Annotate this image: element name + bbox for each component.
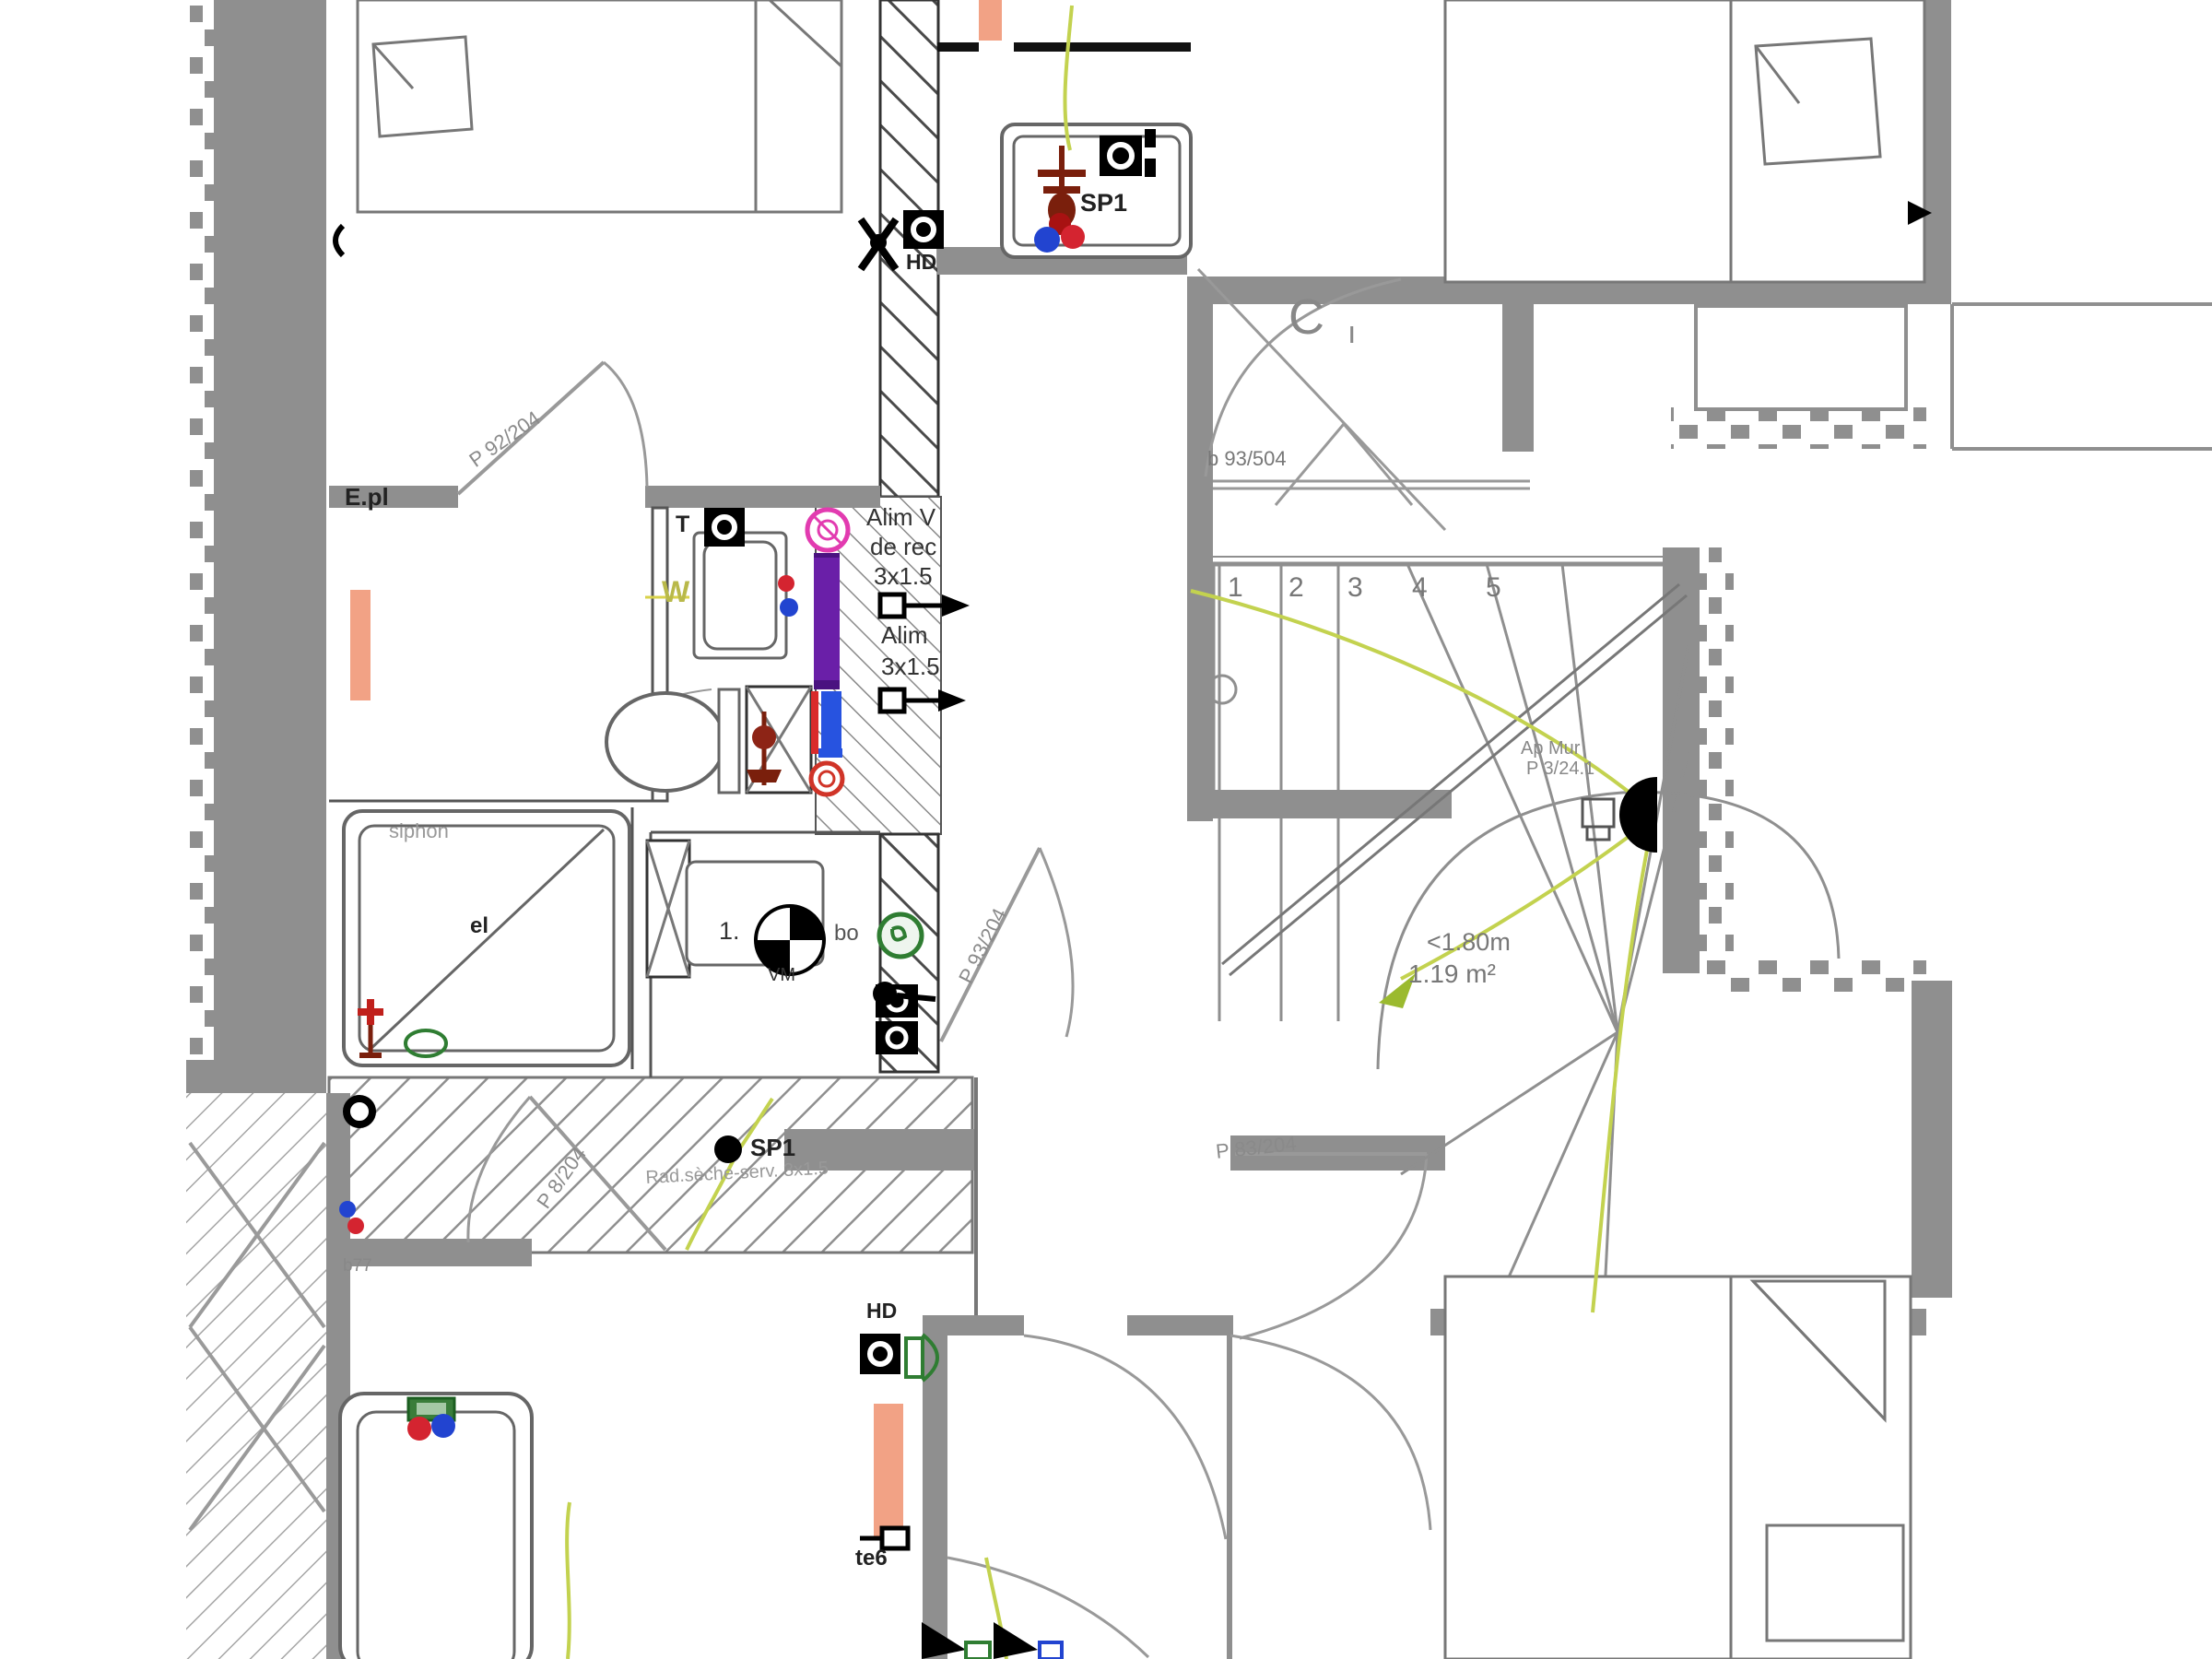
door-corridor-mid [941, 848, 1073, 1041]
label-dcl-num: 1. [719, 918, 740, 944]
label-w-mark: W [662, 577, 689, 608]
hot-dot-basin [778, 575, 794, 592]
hinge-mark [335, 226, 343, 255]
label-dcl-vm: VM [768, 966, 795, 985]
label-stair-dim1: <1.80m [1427, 929, 1511, 955]
hot-dot-wall [347, 1218, 364, 1234]
label-alim1-l1: Alim V [866, 505, 935, 530]
dcl-light-icon [756, 906, 824, 974]
floor-plan: SP1 HD Alim V de rec 3x1.5 Alim 3x1.5 E.… [0, 0, 2212, 1659]
riser-blue [821, 691, 841, 751]
label-hd-bottom: HD [866, 1300, 897, 1322]
bed-top-right [1445, 0, 1924, 282]
cold-water-dot [1034, 227, 1060, 253]
cold-dot-basin [780, 598, 798, 617]
label-siphon: siphon [389, 820, 449, 841]
door-bottom-room [947, 1335, 1226, 1657]
bed-bottom-right [1445, 1277, 1911, 1659]
label-c-mark: C [1288, 291, 1324, 344]
label-tap-t: T [676, 512, 689, 536]
door-bedroom3 [1230, 1154, 1430, 1530]
stair-num-5: 5 [1486, 573, 1501, 603]
toilet [606, 689, 739, 793]
label-window-b93: b 93/504 [1207, 448, 1287, 469]
door-upper-left [458, 362, 647, 494]
floorplan-drawing [0, 0, 2212, 1659]
label-b77: b77 [343, 1257, 372, 1276]
insulation-strip-left [186, 0, 214, 1093]
radiator-bath [350, 590, 371, 700]
label-te6: te6 [855, 1547, 888, 1570]
stair-num-2: 2 [1288, 573, 1304, 603]
label-alim2-l2: 3x1.5 [881, 654, 940, 679]
wall-left [214, 0, 326, 1093]
cold-dot-wall [339, 1201, 356, 1218]
label-sp1-top: SP1 [1080, 190, 1127, 216]
roof-slope-zone [186, 1093, 326, 1659]
stair-num-1: 1 [1228, 573, 1243, 603]
wall-top-black-a [937, 42, 979, 52]
label-alim1-l2: de rec [870, 535, 936, 559]
wall-dormer-left [1502, 276, 1534, 452]
wall-top-black-b [1014, 42, 1191, 52]
terrace-outline [1952, 304, 2212, 449]
label-alim2-l1: Alim [881, 623, 928, 648]
label-drain: el [470, 914, 488, 937]
label-wall-light-l1: Ap Mur [1521, 739, 1580, 759]
riser-purple [811, 553, 842, 758]
insulation-strip-lower-right [1700, 957, 1926, 994]
insulation-strip-stair [1700, 547, 1734, 973]
wall-corridor-right [1187, 276, 1213, 821]
vent-red [811, 763, 842, 794]
bed-top-left [358, 0, 841, 212]
radiator-top [979, 0, 1002, 41]
outlet-icon-duct-top [903, 210, 944, 249]
label-alim1-l3: 3x1.5 [874, 564, 933, 589]
label-hd-top: HD [906, 251, 936, 273]
label-wall-light-l2: P 3/24.1 [1526, 759, 1594, 779]
label-sp1-bottom: SP1 [750, 1135, 795, 1160]
radiator-bottom [874, 1404, 903, 1537]
insulation-strip-dormer [1671, 406, 1926, 449]
shower-tray-main [344, 811, 629, 1065]
vmc-vent-magenta [807, 510, 848, 550]
outlet-icon-corridor-b [876, 1021, 918, 1054]
riser-red [811, 691, 818, 754]
outlet-icon-basin [704, 508, 745, 547]
washbasin-1 [694, 533, 786, 658]
outlet-icon-bottom [860, 1334, 900, 1374]
label-stair-dim2: 1.19 m² [1408, 960, 1496, 987]
label-epl: E.pl [345, 485, 389, 510]
wall-bedroom1-bottom-b [645, 486, 880, 508]
wall-left-connector [186, 1060, 326, 1093]
stair-num-4: 4 [1412, 573, 1428, 603]
dormer-alcove [1696, 306, 1906, 409]
cable-bathtub [567, 1502, 570, 1659]
hot-water-dot [1061, 225, 1085, 249]
green-circle-icon [879, 914, 922, 957]
wall-bottom-room-b [1127, 1315, 1233, 1335]
stair-num-3: 3 [1347, 573, 1363, 603]
spiral-staircase [1208, 557, 1839, 1312]
sp1-spot-icon [714, 1135, 742, 1163]
label-dcl-bo: bo [834, 922, 859, 945]
label-i-mark: ı [1347, 317, 1356, 350]
wall-right-lower [1912, 981, 1952, 1298]
bathroom-fixtures [340, 124, 1191, 1659]
